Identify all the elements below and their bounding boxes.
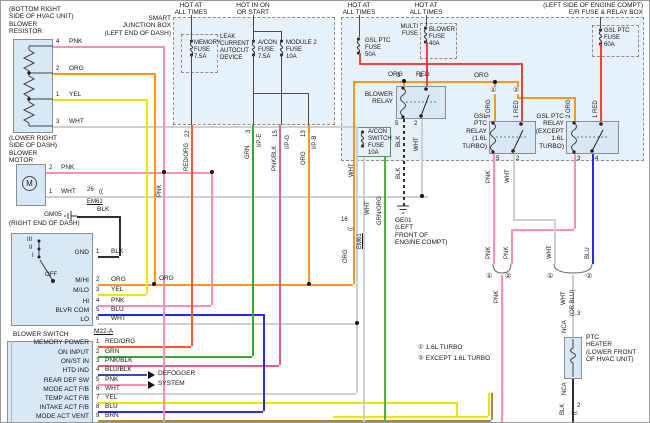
wire-blu bbox=[98, 411, 263, 413]
wire-label: GRN bbox=[105, 348, 119, 355]
wire-pnk bbox=[574, 154, 576, 229]
wire-gorg bbox=[384, 157, 386, 423]
hot-header: HOT AT ALL TIMES bbox=[169, 2, 213, 17]
connector-label: I/P-E bbox=[257, 134, 264, 147]
pin-number: 3 bbox=[56, 119, 59, 126]
wire-org bbox=[308, 125, 310, 284]
wire-wht bbox=[53, 126, 356, 128]
ge01-label: GE01 (LEFT FRONT OF ENGINE COMPT) bbox=[395, 217, 447, 247]
wire-yel bbox=[456, 402, 458, 416]
wire-label: PNK bbox=[157, 185, 164, 197]
switch-pin-name: M/HI bbox=[39, 277, 89, 284]
variant-mark-2: ② bbox=[513, 87, 519, 94]
wire-label: PNK/BLK bbox=[105, 357, 132, 364]
wire-pnk bbox=[46, 172, 211, 174]
fuse-label: GSL PTC FUSE 50A bbox=[365, 38, 390, 59]
pin-number: 2 bbox=[96, 349, 99, 356]
gsl-relay-turbo-internal-icon bbox=[489, 121, 536, 154]
acon-switch-fuse-label: A/CON SWITCH FUSE 10A bbox=[368, 129, 392, 157]
wire-wht bbox=[98, 393, 356, 395]
wire-red bbox=[521, 63, 523, 121]
row-label: ON/ST IN bbox=[11, 358, 89, 365]
wire-label: YEL bbox=[111, 286, 123, 293]
wire-blk bbox=[572, 379, 574, 423]
wire-brn bbox=[491, 393, 493, 420]
pin-number: 2 bbox=[414, 121, 417, 128]
wire-label: 1 RED bbox=[514, 100, 521, 118]
wire-pnk bbox=[511, 229, 513, 264]
wire-label: BLK bbox=[396, 168, 403, 179]
fuse-label: A/CON FUSE 7.5A bbox=[258, 40, 277, 61]
connector-label: I/P-G bbox=[285, 135, 292, 149]
wire-segment bbox=[253, 31, 282, 32]
wire-yel bbox=[333, 416, 488, 418]
pin-number: 9 bbox=[96, 413, 99, 420]
pin-number: 4 bbox=[96, 298, 99, 305]
wire-label: WHT bbox=[111, 315, 126, 322]
wire-label: ORG bbox=[388, 71, 403, 78]
wire-pnk bbox=[493, 154, 495, 264]
leak-label: LEAK CURRENT AUTOCUT DEVICE bbox=[220, 34, 249, 62]
wire-label: PNK/BLK bbox=[272, 146, 279, 171]
wire-label: PNK bbox=[504, 247, 511, 259]
wire-label: BLK bbox=[111, 248, 123, 255]
wire-label: PNK bbox=[494, 291, 501, 303]
junction-dot bbox=[307, 282, 311, 286]
resistor-element-icon bbox=[13, 39, 53, 133]
multi-fuse-label: MULTI FUSE bbox=[392, 24, 418, 38]
wire-wht bbox=[356, 126, 358, 393]
variant-mark-1: ① bbox=[547, 273, 553, 280]
motor-icon: M bbox=[22, 176, 37, 191]
wire-red bbox=[359, 63, 521, 65]
hot-header: HOT IN ON OR START bbox=[231, 2, 275, 17]
pin-number: 1 bbox=[96, 249, 99, 256]
junction-dot bbox=[355, 321, 359, 325]
connector-em61: EM61 bbox=[357, 233, 364, 249]
pin-number: 5 bbox=[96, 307, 99, 314]
pin-number: 5 bbox=[395, 121, 398, 128]
variant-mark-2: ② bbox=[586, 273, 592, 280]
pin-number: 22 bbox=[185, 130, 192, 137]
fuse-label: GSL PTC FUSE 60A bbox=[604, 28, 629, 49]
wire-label: ORG bbox=[111, 276, 126, 283]
wire-label: PNK bbox=[486, 171, 493, 183]
wire-label: BLU/BLK bbox=[105, 366, 132, 373]
variant-mark-1: ① bbox=[486, 273, 492, 280]
switch-pin-name: HI bbox=[39, 298, 89, 305]
er-title: (LEFT SIDE OF ENGINE COMPT) E/R FUSE & R… bbox=[501, 2, 643, 17]
pin-number: 7 bbox=[96, 395, 99, 402]
wire-label: BLK bbox=[560, 404, 567, 415]
wire-label: PNK bbox=[61, 164, 74, 171]
wire-wht bbox=[513, 154, 515, 219]
fuse-label: MEMORY FUSE 7.5A bbox=[194, 40, 221, 61]
switch-pos: II bbox=[29, 245, 32, 252]
wire-yel bbox=[98, 294, 146, 296]
wire-label: BRN bbox=[105, 412, 119, 419]
pin-number: 3 bbox=[246, 130, 253, 133]
row-label: REAR DEF SW bbox=[11, 377, 89, 384]
variant-mark-2: ② bbox=[505, 273, 511, 280]
wire-label: GRN/ORG bbox=[377, 196, 384, 225]
wire-label: BLU bbox=[585, 247, 592, 259]
arrow-icon bbox=[148, 381, 155, 389]
switch-pin-name: BLVR COM bbox=[31, 307, 89, 314]
wire-segment bbox=[191, 55, 192, 125]
wire-segment bbox=[600, 17, 601, 28]
switch-pos: III bbox=[27, 237, 32, 244]
pin-number: 4 bbox=[595, 156, 598, 163]
wire-wht bbox=[46, 196, 428, 198]
wire-wht bbox=[513, 219, 554, 221]
junction-dot bbox=[493, 80, 497, 84]
wire-label: 2 ORG bbox=[566, 99, 573, 118]
wire-yel bbox=[146, 99, 148, 294]
heater-element-icon bbox=[564, 337, 582, 379]
pin-number: 5 bbox=[96, 377, 99, 384]
gm05-label: GM05 bbox=[44, 211, 62, 218]
wire-label: PNK bbox=[105, 376, 118, 383]
wire-segment bbox=[359, 15, 360, 37]
pin-number: 1 bbox=[49, 189, 52, 196]
pin-number: 6 bbox=[96, 386, 99, 393]
connector-icon: (( bbox=[348, 227, 355, 231]
wire-label: WHT bbox=[349, 163, 356, 177]
wire-label: RED/ORG bbox=[105, 338, 135, 345]
wire-label: YEL bbox=[69, 91, 81, 98]
wire-label: ORG bbox=[474, 72, 489, 79]
wire-org bbox=[574, 97, 576, 121]
wire-segment bbox=[253, 93, 308, 94]
pin-number: 2 bbox=[577, 403, 580, 410]
wire-wht bbox=[554, 219, 556, 264]
system-label: SYSTEM bbox=[158, 380, 185, 387]
wire-label: PNK bbox=[69, 38, 82, 45]
resistor-title: (BOTTOM RIGHT SIDE OF HVAC UNIT) BLOWER … bbox=[9, 6, 74, 36]
arrow-icon bbox=[148, 371, 155, 379]
wire-blk-dashed bbox=[403, 119, 405, 207]
row-label: HTD IND bbox=[11, 367, 89, 374]
pin-number: 2 bbox=[96, 277, 99, 284]
wire-label: WHT bbox=[69, 118, 84, 125]
pin-number: 5 bbox=[496, 156, 499, 163]
wire-org bbox=[53, 73, 154, 75]
wire-label: WHT bbox=[547, 245, 554, 259]
connector-m22a: M22-A bbox=[94, 328, 113, 335]
wire-yel bbox=[53, 99, 146, 101]
gsl-relay-except-internal-icon bbox=[566, 121, 619, 154]
wire-label: ORG bbox=[69, 65, 84, 72]
pin-number: 13 bbox=[301, 130, 308, 137]
wire-red bbox=[359, 53, 361, 63]
switch-pos: I bbox=[32, 253, 34, 260]
pin-number: 1 bbox=[96, 339, 99, 346]
wire-label: WHT bbox=[105, 385, 120, 392]
wire-segment bbox=[281, 55, 282, 125]
ptc-heater-title: PTC HEATER (LOWER FRONT OF HVAC UNIT) bbox=[586, 334, 636, 364]
junction-dot bbox=[402, 79, 406, 83]
gsl-relay-turbo-title: GSL PTC RELAY (1.6L TURBO) bbox=[460, 113, 487, 150]
wire-label: BLU bbox=[111, 306, 124, 313]
wire-segment bbox=[308, 93, 309, 125]
junction-dot bbox=[420, 194, 424, 198]
defogger-label: DEFOGGER bbox=[158, 370, 195, 377]
wire-segment bbox=[253, 55, 254, 125]
connector-icon: (( bbox=[99, 189, 103, 196]
switch-pin-name: M/LO bbox=[39, 287, 89, 294]
wire-org bbox=[98, 284, 353, 286]
wire-pnk bbox=[211, 172, 213, 305]
wire-org bbox=[154, 73, 156, 284]
pin-number: 4 bbox=[56, 39, 59, 46]
wire-label: 3 ORG bbox=[486, 99, 493, 118]
junction-dot bbox=[210, 170, 214, 174]
wire-label: PNK bbox=[486, 247, 493, 259]
legend-item-2: ② EXCEPT 1.6L TURBO bbox=[418, 355, 490, 362]
wire-label: WHT bbox=[505, 169, 512, 183]
row-label: MODE ACT VENT bbox=[11, 413, 89, 420]
wiring-diagram: M ( bbox=[0, 0, 650, 423]
row-label: INTAKE ACT F/B bbox=[11, 404, 89, 411]
pin-number: 1 bbox=[56, 92, 59, 99]
pin-number: 3 bbox=[96, 287, 99, 294]
junction-dot bbox=[152, 282, 156, 286]
wire-label: RED bbox=[416, 71, 430, 78]
junction-dot bbox=[162, 170, 166, 174]
row-label: ON INPUT bbox=[11, 349, 89, 356]
hot-header: HOT AT ALL TIMES bbox=[337, 2, 381, 17]
wire-label: RED/ORG bbox=[184, 143, 191, 171]
pin-number: 6 bbox=[96, 316, 99, 323]
connector-label: NCA bbox=[562, 382, 569, 395]
pin-number: 3 bbox=[96, 358, 99, 365]
wire-label: WHT bbox=[561, 291, 568, 305]
wire-pnk bbox=[511, 229, 574, 231]
wire-red bbox=[426, 42, 428, 86]
wire-label: WHT bbox=[61, 188, 76, 195]
wire-label: WHT bbox=[365, 201, 372, 215]
right-end-label: (RIGHT END OF DASH) bbox=[9, 220, 80, 227]
connector-icon: (( bbox=[572, 411, 579, 415]
connector-pin: 16 bbox=[341, 217, 348, 224]
pin-number: 3 bbox=[577, 311, 580, 318]
fuse-label: MODULE 2 FUSE 10A bbox=[286, 40, 317, 61]
wire-pnk bbox=[163, 46, 165, 172]
wire-yel bbox=[488, 393, 490, 416]
variant-mark-1: ① bbox=[490, 87, 496, 94]
blower-relay-title: BLOWER RELAY bbox=[362, 91, 393, 106]
connector-label: NCA bbox=[562, 320, 569, 333]
wire-label: (OR BLU) bbox=[570, 290, 577, 316]
fuse-icon bbox=[358, 130, 367, 148]
connector-pin: 26 bbox=[87, 187, 94, 194]
wire-segment bbox=[191, 15, 192, 39]
wire-label: YEL bbox=[105, 394, 117, 401]
wire-label: BLK bbox=[97, 206, 109, 213]
row-label: MODE ACT F/B bbox=[11, 386, 89, 393]
wire-label: ORG bbox=[301, 151, 308, 165]
row-label: TEMP ACT F/B bbox=[11, 395, 89, 402]
pin-number: 2 bbox=[56, 66, 59, 73]
wire-segment bbox=[253, 15, 254, 39]
legend-item-1: ① 1.6L TURBO bbox=[418, 344, 462, 351]
motor-title: (LOWER RIGHT SIDE OF DASH) BLOWER MOTOR bbox=[9, 135, 57, 165]
pin-number: 2 bbox=[516, 156, 519, 163]
pin-number: 8 bbox=[96, 404, 99, 411]
wire-blk bbox=[98, 256, 119, 258]
wire-blu bbox=[263, 314, 265, 411]
wire-label: ORG bbox=[159, 275, 174, 282]
wire-wht bbox=[98, 323, 356, 325]
gsl-relay-except-title: GSL PTC RELAY (EXCEPT 1.6L TURBO) bbox=[533, 113, 564, 150]
wire-red bbox=[600, 44, 602, 121]
wire-rorg bbox=[191, 125, 193, 346]
wire-blk bbox=[77, 216, 119, 218]
pin-number: 2 bbox=[49, 165, 52, 172]
wire-pnk bbox=[53, 46, 163, 48]
wire-blu bbox=[592, 154, 594, 264]
wire-wht bbox=[421, 119, 423, 196]
pin-number: 3 bbox=[577, 156, 580, 163]
row-label: MEMORY POWER bbox=[11, 339, 89, 346]
wire-label: BLK bbox=[396, 136, 403, 147]
wire-label: 1 RED bbox=[593, 100, 600, 118]
wire-label: BLU bbox=[105, 403, 118, 410]
wire-label: WHT bbox=[414, 137, 421, 151]
wire-brn bbox=[98, 420, 491, 422]
wire-label: PNK bbox=[111, 297, 124, 304]
switch-pin-name: GND bbox=[39, 249, 89, 256]
fuse-label: BLOWER FUSE 40A bbox=[429, 27, 455, 48]
pin-number: 15 bbox=[273, 130, 280, 137]
connector-label: I/P-B bbox=[312, 136, 319, 149]
wire-pnk bbox=[501, 275, 503, 423]
wire-label: GRN bbox=[245, 146, 252, 159]
blower-relay-internal-icon bbox=[396, 86, 446, 119]
wire-segment bbox=[281, 31, 282, 39]
wire-wht bbox=[363, 157, 365, 423]
pin-number: 4 bbox=[96, 367, 99, 374]
wire-org bbox=[353, 81, 355, 284]
wire-pblk bbox=[279, 125, 281, 365]
wire-grn bbox=[252, 125, 254, 356]
sjb-title: SMART JUNCTION BOX (LEFT END OF DASH) bbox=[99, 15, 171, 37]
wire-yel bbox=[98, 402, 456, 404]
wire-label: ORG bbox=[343, 249, 350, 263]
switch-pin-name: LO bbox=[39, 316, 89, 323]
connector-em61: EM61 bbox=[87, 199, 103, 206]
hot-header: HOT AT ALL TIMES bbox=[404, 2, 448, 17]
blower-switch-title: BLOWER SWITCH bbox=[13, 331, 69, 338]
